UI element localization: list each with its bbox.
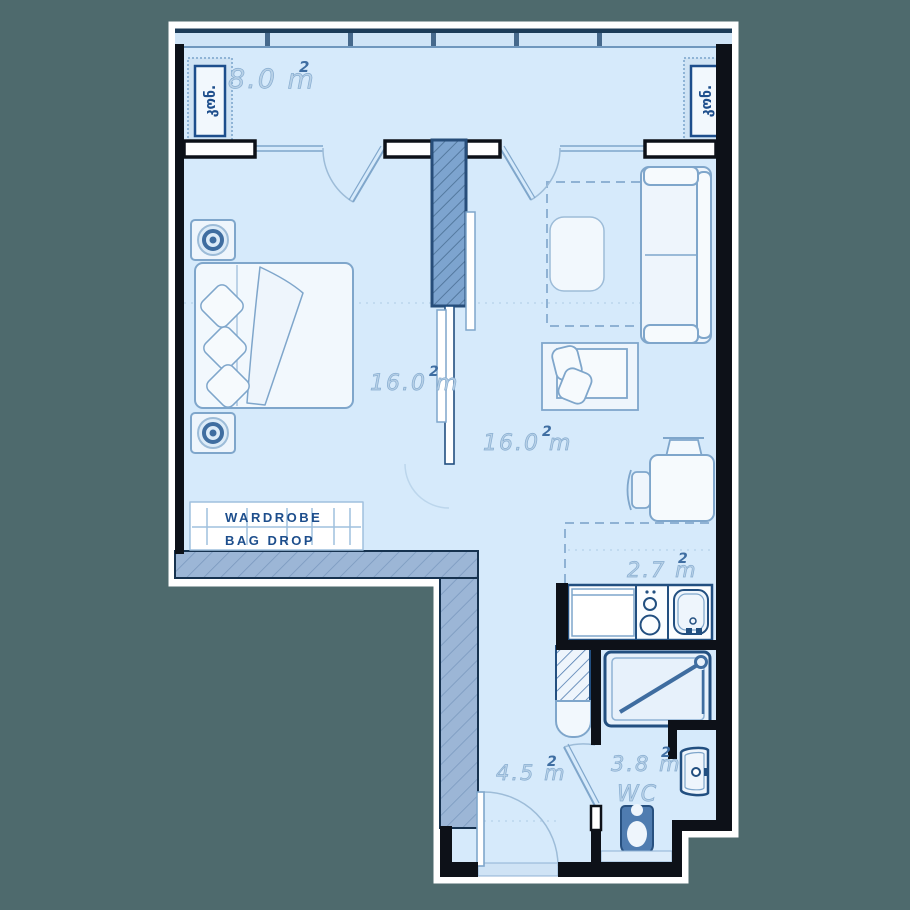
- entrance-threshold: [478, 863, 558, 876]
- bedroom-area-label: 16.0 m: [370, 371, 459, 396]
- wc-label: WC: [617, 782, 658, 807]
- wall-bath-left: [591, 650, 601, 745]
- balcony-area-sup: 2: [299, 58, 309, 76]
- wall-basin-nook-top: [668, 720, 732, 730]
- living-area-label: 16.0 m: [483, 431, 572, 456]
- coffee-table: [550, 217, 604, 291]
- living-area-sup: 2: [542, 424, 552, 440]
- utility-closet: [556, 646, 591, 737]
- washbasin-icon: [681, 748, 709, 795]
- floor-plan-canvas: კონ. კონ.: [0, 0, 910, 910]
- wardrobe: WARDROBE BAG DROP: [190, 502, 363, 550]
- fridge: [572, 589, 634, 636]
- hallway-area-sup: 2: [547, 754, 557, 770]
- toilet-icon: [621, 804, 653, 854]
- sliding-panel-upper: [466, 212, 475, 330]
- nightstand-top: [191, 220, 235, 260]
- kitchen-sink-icon: [674, 590, 708, 635]
- bathroom-area-sup: 2: [661, 745, 671, 761]
- wall-step-vertical: [672, 831, 682, 877]
- floor-plan: კონ. კონ.: [0, 0, 910, 910]
- wall-left: [175, 44, 184, 554]
- ac-unit-left: კონ.: [188, 58, 232, 144]
- ac-right-label: კონ.: [699, 85, 715, 117]
- wall-bath-left-lower: [591, 830, 601, 863]
- nightstand-bottom: [191, 413, 235, 453]
- wardrobe-label-line1: WARDROBE: [225, 510, 322, 525]
- wall-kitchen-stub: [556, 583, 568, 650]
- entrance-door-leaf: [477, 792, 484, 866]
- wall-bottom-left: [440, 862, 478, 877]
- bedroom-area-sup: 2: [429, 364, 439, 380]
- sofa: [641, 167, 711, 343]
- lounge-chair: [542, 343, 638, 410]
- wall-kitchen-bath: [556, 640, 732, 650]
- wall-right: [716, 44, 732, 831]
- toilet-shelf: [601, 851, 672, 862]
- ac-left-label: კონ.: [203, 85, 219, 117]
- bathroom-area-label: 3.8 m: [611, 752, 682, 776]
- wall-step-horizontal: [672, 820, 732, 831]
- kitchen-area-sup: 2: [678, 551, 688, 567]
- shower: [605, 652, 710, 726]
- bed: [195, 263, 353, 410]
- wardrobe-label-line2: BAG DROP: [225, 533, 315, 548]
- balcony-glazing: [175, 31, 732, 47]
- wall-bottom-right: [558, 862, 682, 877]
- wall-wc-door-stub: [591, 806, 601, 830]
- structural-column: [432, 140, 466, 306]
